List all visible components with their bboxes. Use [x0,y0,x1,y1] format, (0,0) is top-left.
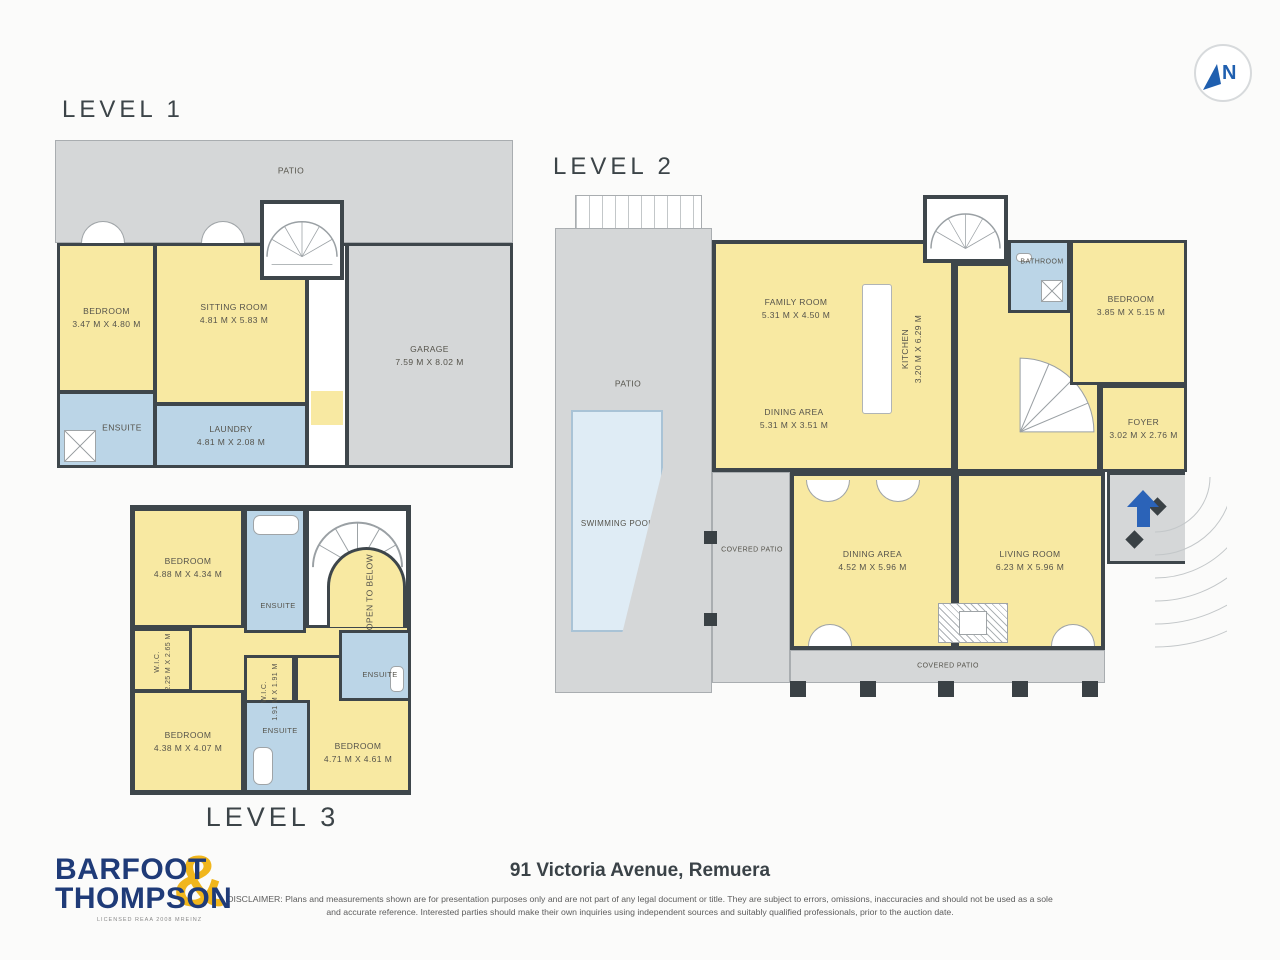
room-label: KITCHEN 3.20 M X 6.29 M [899,315,925,383]
room-label: ENSUITE [262,725,297,737]
spiral-stairs-icon-l3: OPEN TO BELOW [306,508,409,628]
level3-floorplan: BEDROOM 4.88 M X 4.34 M ENSUITE OPEN TO … [130,500,415,800]
room-label: FOYER 3.02 M X 2.76 M [1109,415,1177,441]
room-covered-patio-bottom-l2: COVERED PATIO [790,650,1105,683]
level1-floorplan: PATIO BEDROOM 3.47 M X 4.80 M ENSUITE SI… [55,140,515,470]
room-label: OPEN TO BELOW [363,554,376,630]
room-label: BATHROOM [1020,258,1063,269]
room-dining-lower-l2: DINING AREA 4.52 M X 5.96 M [790,472,955,650]
shower-icon [64,430,96,462]
bathtub-icon [253,515,299,535]
room-label: PATIO [615,377,641,390]
double-door-icon [201,221,245,243]
logo-tagline: LICENSED REAA 2008 MREINZ [97,918,232,923]
fireplace-icon [938,603,1008,643]
room-label: BEDROOM 3.85 M X 5.15 M [1097,293,1165,319]
stairs-icon-l2-top [575,195,702,231]
room-label: COVERED PATIO [721,546,783,557]
room-label: SITTING ROOM 4.81 M X 5.83 M [200,301,268,327]
double-door-icon [81,221,125,243]
open-to-below-area: OPEN TO BELOW [327,547,406,627]
room-bathroom-l2: BATHROOM [1008,240,1070,313]
room-label: BEDROOM 4.38 M X 4.07 M [154,728,222,754]
room-ensuite-top-l3: ENSUITE [244,508,306,633]
room-label: ENSUITE [260,600,295,612]
room-label: LIVING ROOM 6.23 M X 5.96 M [996,548,1064,574]
double-door-icon [808,624,852,646]
logo-line2: THOMPSON [55,885,232,914]
north-arrow-icon: N [1194,44,1252,102]
disclaimer-text: DISCLAIMER: Plans and measurements shown… [225,893,1055,920]
floorplan-page: N LEVEL 1 PATIO BEDROOM 3.47 M X 4.80 M … [0,0,1280,960]
room-label: BEDROOM 4.88 M X 4.34 M [154,555,222,581]
entry-arrow-icon [1127,490,1159,527]
room-label: DINING AREA 5.31 M X 3.51 M [760,406,828,432]
room-label: LAUNDRY 4.81 M X 2.08 M [197,422,265,448]
spiral-stairs-icon-l2 [923,195,1008,263]
room-bedroom-l1: BEDROOM 3.47 M X 4.80 M [57,243,156,393]
room-label: FAMILY ROOM 5.31 M X 4.50 M [762,296,830,322]
pillar [938,681,954,697]
room-garage-l1: GARAGE 7.59 M X 8.02 M [346,243,513,468]
pillar [1082,681,1098,697]
room-ensuite-right-l3: ENSUITE [339,630,411,701]
bathtub-icon [253,747,273,785]
room-family-dining-l2: FAMILY ROOM 5.31 M X 4.50 M DINING AREA … [712,240,955,472]
room-label: BEDROOM 4.71 M X 4.61 M [324,740,392,766]
pillar [860,681,876,697]
north-letter: N [1222,62,1236,84]
room-bedroom-top-l3: BEDROOM 4.88 M X 4.34 M [132,508,244,628]
spiral-stairs-icon-l1 [260,200,344,280]
pillar [790,681,806,697]
level3-title: LEVEL 3 [130,802,415,833]
room-label: ENSUITE [362,669,397,681]
double-door-icon [1051,624,1095,646]
room-label: W.I.C. 1.91 M X 1.91 M [260,663,282,720]
room-ensuite-l1: ENSUITE [57,391,156,468]
room-bedroom-l2: BEDROOM 3.85 M X 5.15 M [1070,240,1187,385]
double-door-icon [876,480,920,502]
kitchen-island [862,284,892,414]
level2-title: LEVEL 2 [553,153,675,181]
room-label: COVERED PATIO [917,662,979,673]
pillar [704,613,717,626]
room-foyer-l2: FOYER 3.02 M X 2.76 M [1100,385,1187,472]
level2-floorplan: PATIO SWIMMING POOL FAMILY ROOM 5.31 M X… [555,195,1227,707]
room-label: SWIMMING POOL [581,518,653,530]
double-door-icon [806,480,850,502]
logo-line1: BARFOOT [55,856,232,885]
hall-nook-l1 [311,391,343,425]
room-laundry-l1: LAUNDRY 4.81 M X 2.08 M [154,403,308,468]
pillar [1012,681,1028,697]
room-label: PATIO [278,164,304,177]
room-label: GARAGE 7.59 M X 8.02 M [395,342,463,368]
level1-title: LEVEL 1 [62,96,184,124]
room-label: BEDROOM 3.47 M X 4.80 M [72,305,140,331]
room-covered-patio-left-l2: COVERED PATIO [712,472,790,683]
room-label: ENSUITE [102,421,142,434]
room-label: W.I.C. 2.25 M X 2.65 M [153,633,175,690]
shower-icon [1041,280,1063,302]
pillar [704,531,717,544]
room-bedroom-left-l3: BEDROOM 4.38 M X 4.07 M [132,690,244,793]
room-label: DINING AREA 4.52 M X 5.96 M [838,548,906,574]
barfoot-thompson-logo: & BARFOOT THOMPSON LICENSED REAA 2008 MR… [55,856,232,923]
room-wic-left-l3: W.I.C. 2.25 M X 2.65 M [132,628,192,692]
